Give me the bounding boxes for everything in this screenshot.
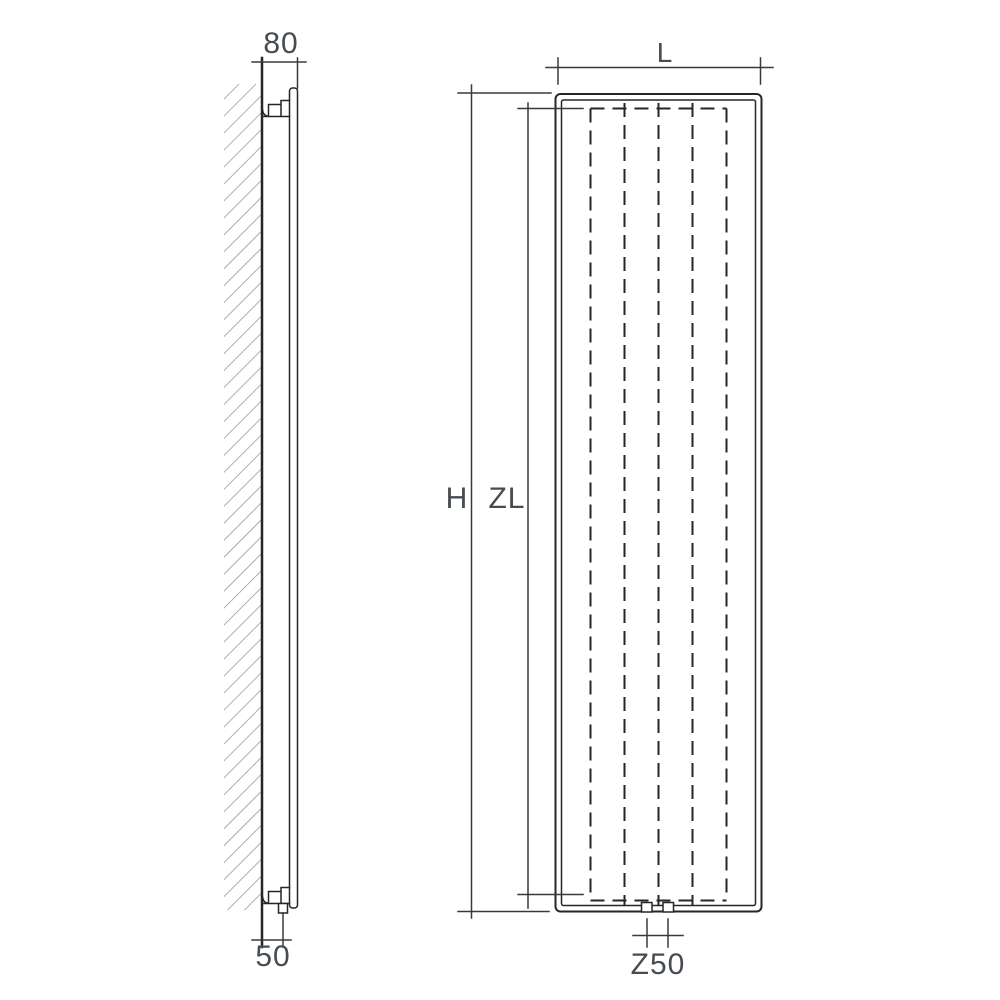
wall-bracket-top [262, 101, 290, 117]
pipe-connection-left [642, 903, 653, 913]
width-dimension: L [546, 37, 773, 84]
side-view: 80 50 [224, 27, 306, 973]
wall-bracket-bottom [262, 888, 290, 904]
width-dimension-label: L [657, 37, 674, 68]
depth-dimension: 80 [252, 27, 306, 88]
pipe-offset-dimension-label: 50 [255, 940, 290, 973]
connection-spacing-dimension-label: Z50 [631, 948, 686, 981]
pipe-offset-dimension: 50 [252, 913, 291, 973]
wall-hatch [224, 84, 262, 910]
radiator-dimension-diagram: 80 50 [0, 0, 1000, 1000]
zone-length-dimension-label: ZL [488, 482, 525, 515]
height-dimension-label: H [446, 482, 469, 515]
technical-drawing-canvas: 80 50 [0, 0, 1000, 1000]
pipe-connection-right [663, 903, 674, 913]
radiator-panel-side [290, 88, 298, 908]
depth-dimension-label: 80 [263, 27, 298, 60]
front-view: L H ZL Z50 [446, 37, 773, 981]
connection-spacing-dimension: Z50 [631, 919, 686, 981]
pipe-connection-side [279, 904, 288, 914]
